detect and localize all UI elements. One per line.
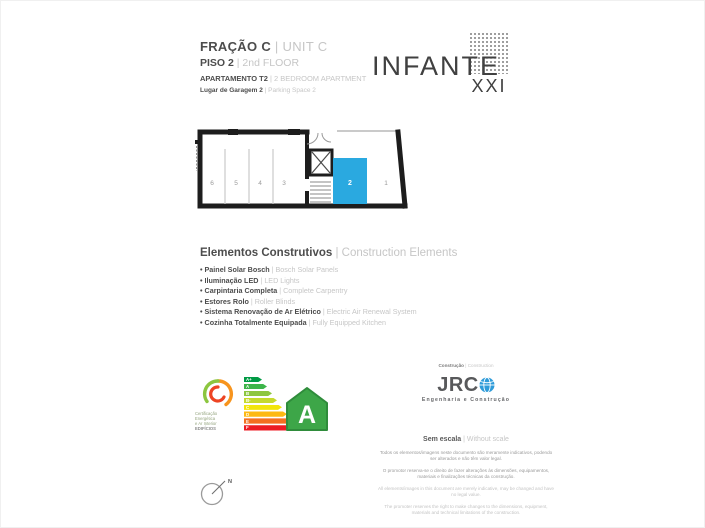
apartment-title-en: 2 BEDROOM APARTMENT — [274, 74, 366, 83]
compass-north-label: N — [228, 479, 232, 485]
item-en: Bosch Solar Panels — [276, 265, 339, 274]
construction-item: Painel Solar BoschBosch Solar Panels — [200, 265, 417, 276]
parking-space-label-4: 4 — [258, 180, 262, 187]
elevator-icon — [310, 150, 332, 175]
floor-title-pt: PISO 2 — [200, 57, 234, 69]
apartment-title-pt: APARTAMENTO T2 — [200, 74, 268, 83]
energy-class-row: A+ — [244, 377, 262, 382]
construction-item: Cozinha Totalmente EquipadaFully Equippe… — [200, 318, 417, 329]
header-block: FRAÇÃO CUNIT C PISO 22nd FLOOR APARTAMEN… — [200, 39, 366, 94]
parking-space-label-3: 3 — [282, 180, 286, 187]
builder-label-pt: Construção — [438, 363, 464, 368]
construction-item: Carpintaria CompletaComplete Carpentry — [200, 286, 417, 297]
scale-note-pt: Sem escala — [423, 436, 461, 443]
construction-title-pt: Elementos Construtivos — [200, 247, 332, 259]
construction-item: Iluminação LEDLED Lights — [200, 276, 417, 287]
builder-logo-text: JRC — [437, 374, 479, 396]
plan-column — [228, 129, 238, 135]
energy-rating-letter: A — [298, 401, 316, 429]
construction-item: Sistema Renovação de Ar ElétricoElectric… — [200, 307, 417, 318]
energy-rating-badge: A — [284, 385, 330, 433]
cert-caption-line: EDIFÍCIOS — [195, 427, 241, 432]
scale-note: Sem escalaWithout scale — [386, 436, 546, 443]
stairs-icon — [310, 182, 331, 202]
floor-title: PISO 22nd FLOOR — [200, 57, 366, 69]
fraction-title-en: UNIT C — [283, 39, 328, 54]
disclaimer-pt-1: Todos os elementos/imagens neste documen… — [378, 450, 554, 462]
construction-title: Elementos ConstrutivosConstruction Eleme… — [200, 247, 457, 259]
energy-class-row: D — [244, 411, 287, 416]
brand-dots-pattern-icon — [469, 32, 509, 74]
energy-class-label: B — [246, 391, 249, 396]
builder-tagline: Engenharia e Construção — [386, 397, 546, 403]
energy-certification-caption: Certificação Energética e Ar Interior ED… — [195, 412, 241, 432]
apartment-title: APARTAMENTO T22 BEDROOM APARTMENT — [200, 74, 366, 83]
energy-class-label: A — [246, 384, 249, 389]
energy-class-label: F — [246, 425, 249, 430]
item-pt: Estores Rolo — [205, 297, 249, 306]
builder-section: ConstruçãoConstruction JRC Engenharia e … — [386, 363, 546, 403]
separator — [271, 39, 283, 54]
energy-class-label: D — [246, 412, 249, 417]
parking-space-label-2: 2 — [348, 180, 352, 187]
item-pt: Cozinha Totalmente Equipada — [205, 318, 307, 327]
garage-title: Lugar de Garagem 2Parking Space 2 — [200, 87, 366, 94]
energy-certification-logo-icon — [197, 376, 239, 416]
plan-column — [288, 129, 300, 135]
item-en: LED Lights — [264, 276, 299, 285]
compass-icon: N — [197, 473, 239, 515]
garage-title-pt: Lugar de Garagem 2 — [200, 87, 263, 94]
energy-class-row: B — [244, 391, 272, 396]
door-arc-icon — [322, 133, 331, 142]
item-pt: Iluminação LED — [205, 276, 259, 285]
floor-plan: 6 5 4 3 2 1 — [194, 119, 438, 219]
brand-logo-numeral: XXI — [469, 76, 509, 97]
scale-note-en: Without scale — [467, 436, 509, 443]
disclaimer-en-1: All elements/images in this document are… — [378, 486, 554, 498]
construction-item: Estores RoloRoller Blinds — [200, 297, 417, 308]
energy-class-label: C — [246, 405, 249, 410]
globe-icon — [479, 377, 495, 393]
parking-space-label-5: 5 — [234, 180, 238, 187]
separator — [332, 247, 341, 259]
fraction-title: FRAÇÃO CUNIT C — [200, 39, 366, 54]
item-en: Fully Equipped Kitchen — [313, 318, 387, 327]
item-en: Electric Air Renewal System — [327, 307, 417, 316]
item-en: Roller Blinds — [255, 297, 295, 306]
disclaimer-block: Todos os elementos/imagens neste documen… — [378, 450, 554, 522]
disclaimer-pt-2: O promotor reserva-se o direito de fazer… — [378, 468, 554, 480]
fraction-title-pt: FRAÇÃO C — [200, 39, 271, 54]
energy-class-label: A+ — [246, 377, 252, 382]
parking-space-label-1: 1 — [384, 180, 388, 187]
builder-label-en: Construction — [468, 363, 494, 368]
garage-title-en: Parking Space 2 — [268, 87, 316, 94]
parking-space-label-6: 6 — [210, 180, 214, 187]
builder-logo: JRC — [386, 375, 546, 395]
construction-list: Painel Solar BoschBosch Solar Panels Ilu… — [200, 265, 417, 329]
energy-class-label: B- — [246, 398, 251, 403]
item-en: Complete Carpentry — [283, 286, 347, 295]
item-pt: Carpintaria Completa — [205, 286, 278, 295]
energy-class-row: B- — [244, 398, 277, 403]
brochure-page: FRAÇÃO CUNIT C PISO 22nd FLOOR APARTAMEN… — [0, 0, 705, 528]
plan-walls — [200, 132, 405, 206]
item-pt: Sistema Renovação de Ar Elétrico — [205, 307, 321, 316]
energy-class-row: A — [244, 384, 267, 389]
energy-class-label: E — [246, 419, 249, 424]
builder-label: ConstruçãoConstruction — [386, 363, 546, 368]
floor-title-en: 2nd FLOOR — [242, 57, 299, 69]
disclaimer-en-2: The promoter reserves the right to make … — [378, 504, 554, 516]
energy-class-row: C — [244, 405, 282, 410]
item-pt: Painel Solar Bosch — [205, 265, 270, 274]
plan-wall-marker — [195, 140, 199, 144]
construction-title-en: Construction Elements — [342, 247, 458, 259]
